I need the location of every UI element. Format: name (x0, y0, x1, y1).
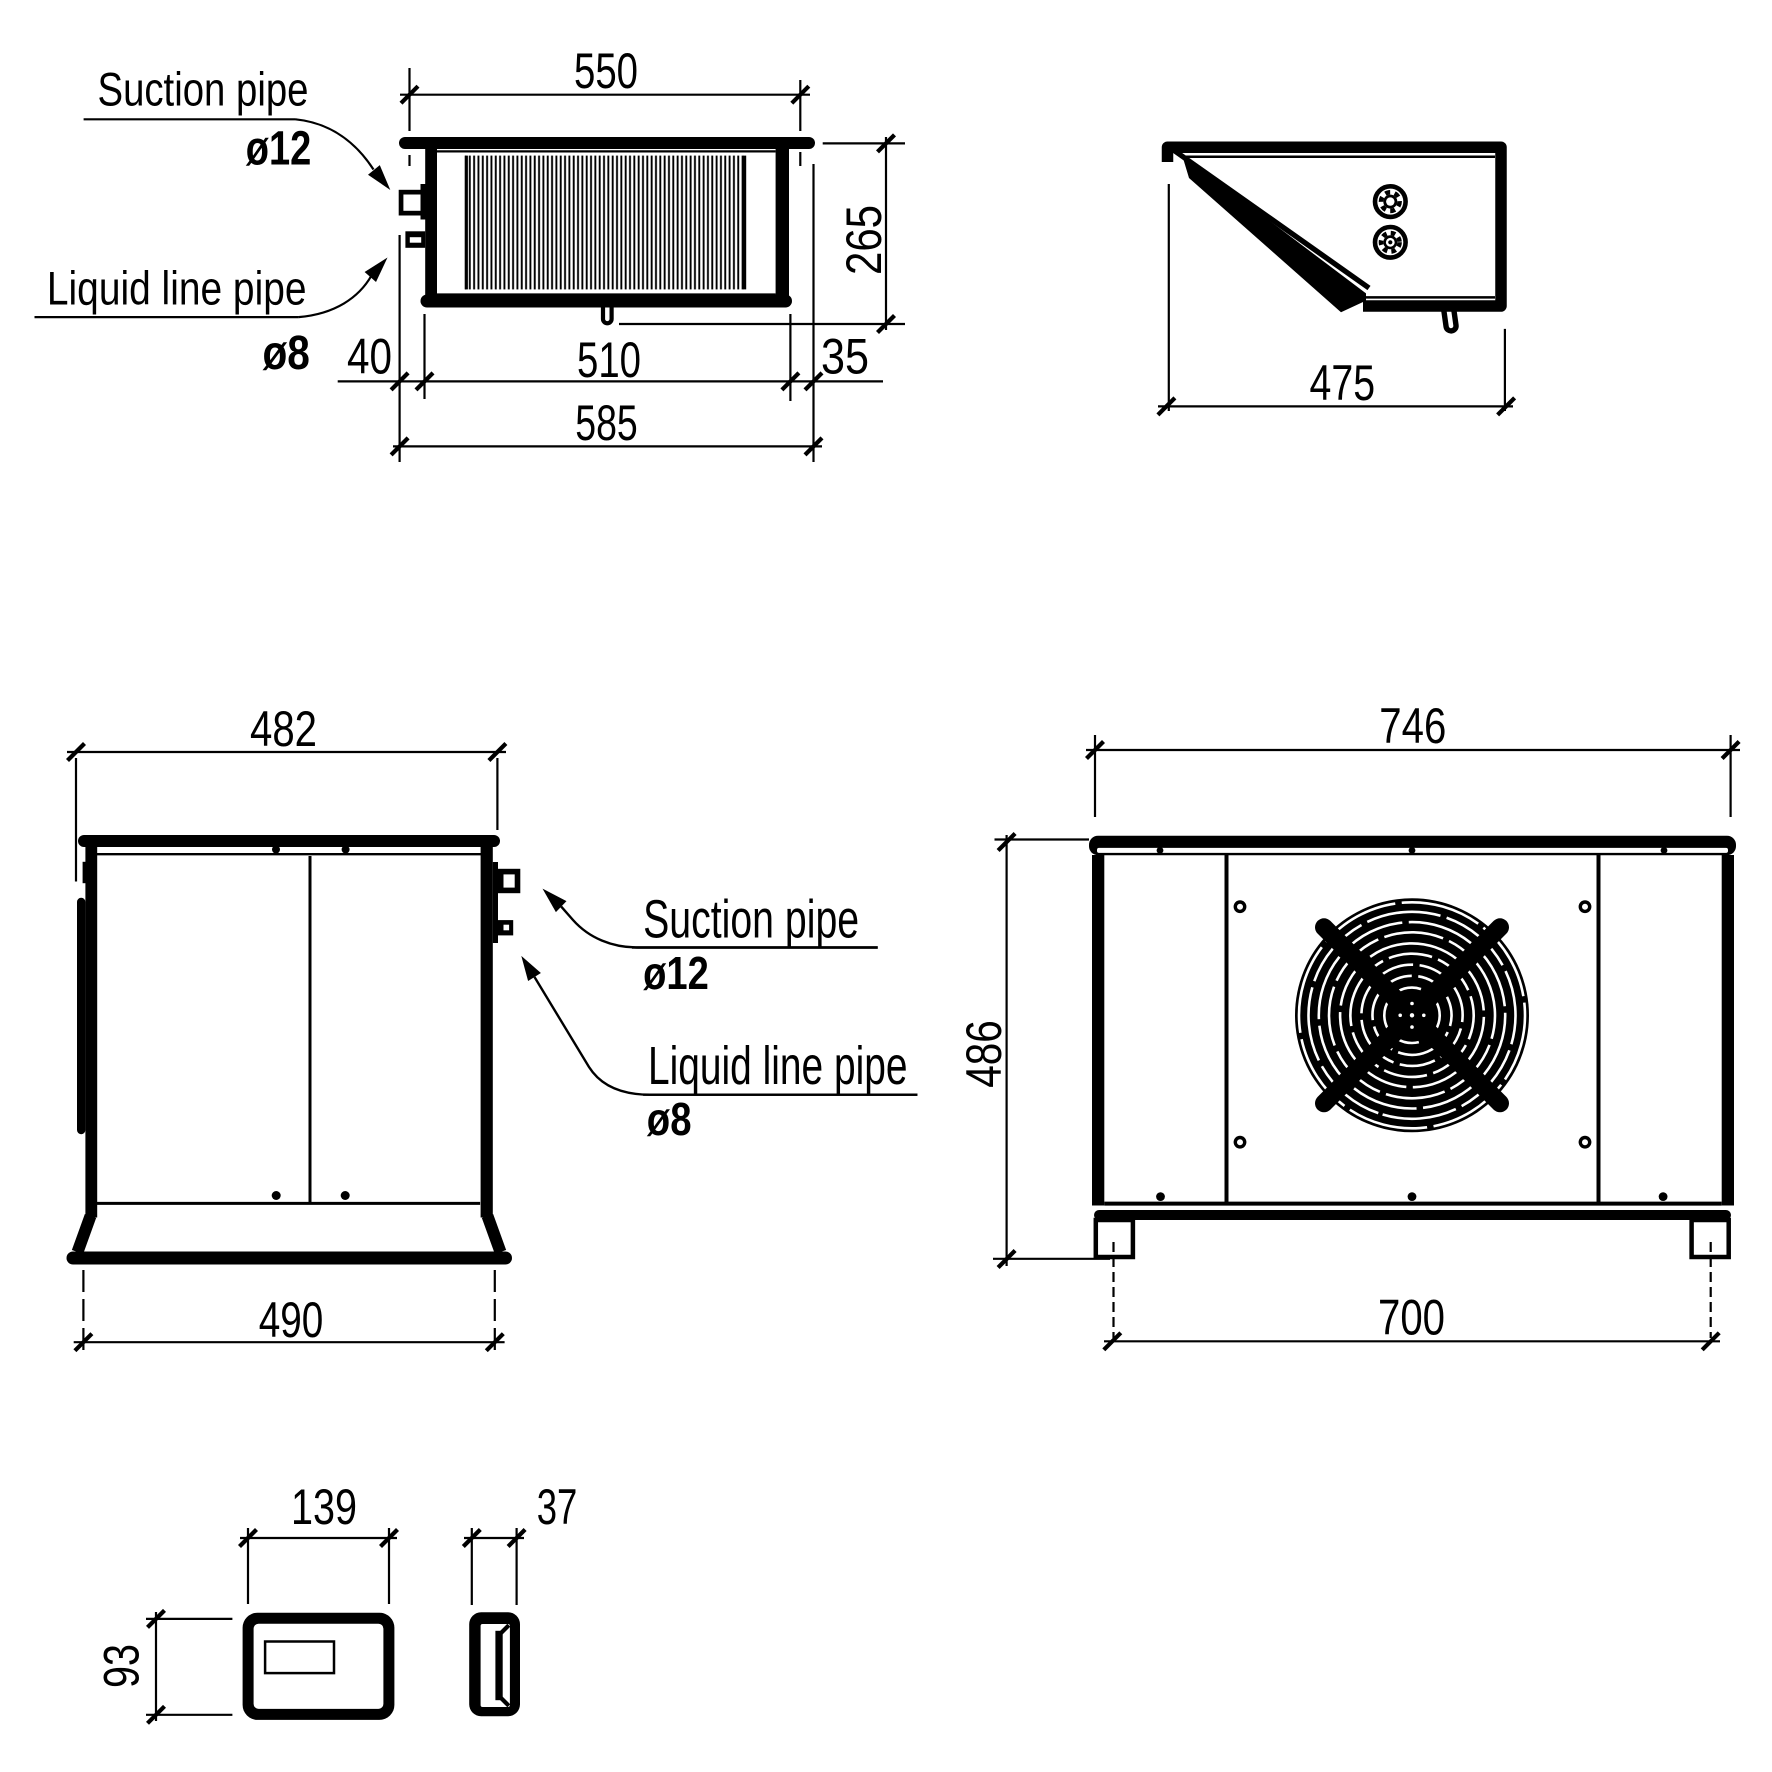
svg-text:510: 510 (577, 332, 641, 388)
svg-text:37: 37 (537, 1479, 578, 1535)
svg-text:700: 700 (1378, 1290, 1445, 1346)
svg-text:40: 40 (347, 329, 392, 385)
svg-text:486: 486 (956, 1020, 1012, 1088)
svg-text:ø12: ø12 (643, 947, 709, 999)
svg-text:ø12: ø12 (246, 123, 311, 176)
svg-text:Liquid line pipe: Liquid line pipe (47, 262, 307, 315)
svg-text:490: 490 (259, 1292, 324, 1348)
svg-text:Liquid line pipe: Liquid line pipe (648, 1036, 908, 1096)
svg-text:746: 746 (1379, 698, 1446, 754)
svg-text:475: 475 (1310, 355, 1376, 411)
svg-text:550: 550 (574, 43, 638, 99)
svg-text:ø8: ø8 (263, 327, 310, 380)
svg-text:35: 35 (821, 329, 869, 385)
svg-text:93: 93 (94, 1644, 150, 1688)
svg-text:ø8: ø8 (647, 1093, 692, 1145)
svg-text:139: 139 (291, 1479, 357, 1535)
svg-text:265: 265 (836, 205, 892, 275)
svg-text:Suction pipe: Suction pipe (643, 890, 859, 950)
svg-text:585: 585 (575, 395, 638, 451)
svg-text:482: 482 (250, 701, 317, 757)
svg-text:Suction pipe: Suction pipe (98, 63, 309, 116)
